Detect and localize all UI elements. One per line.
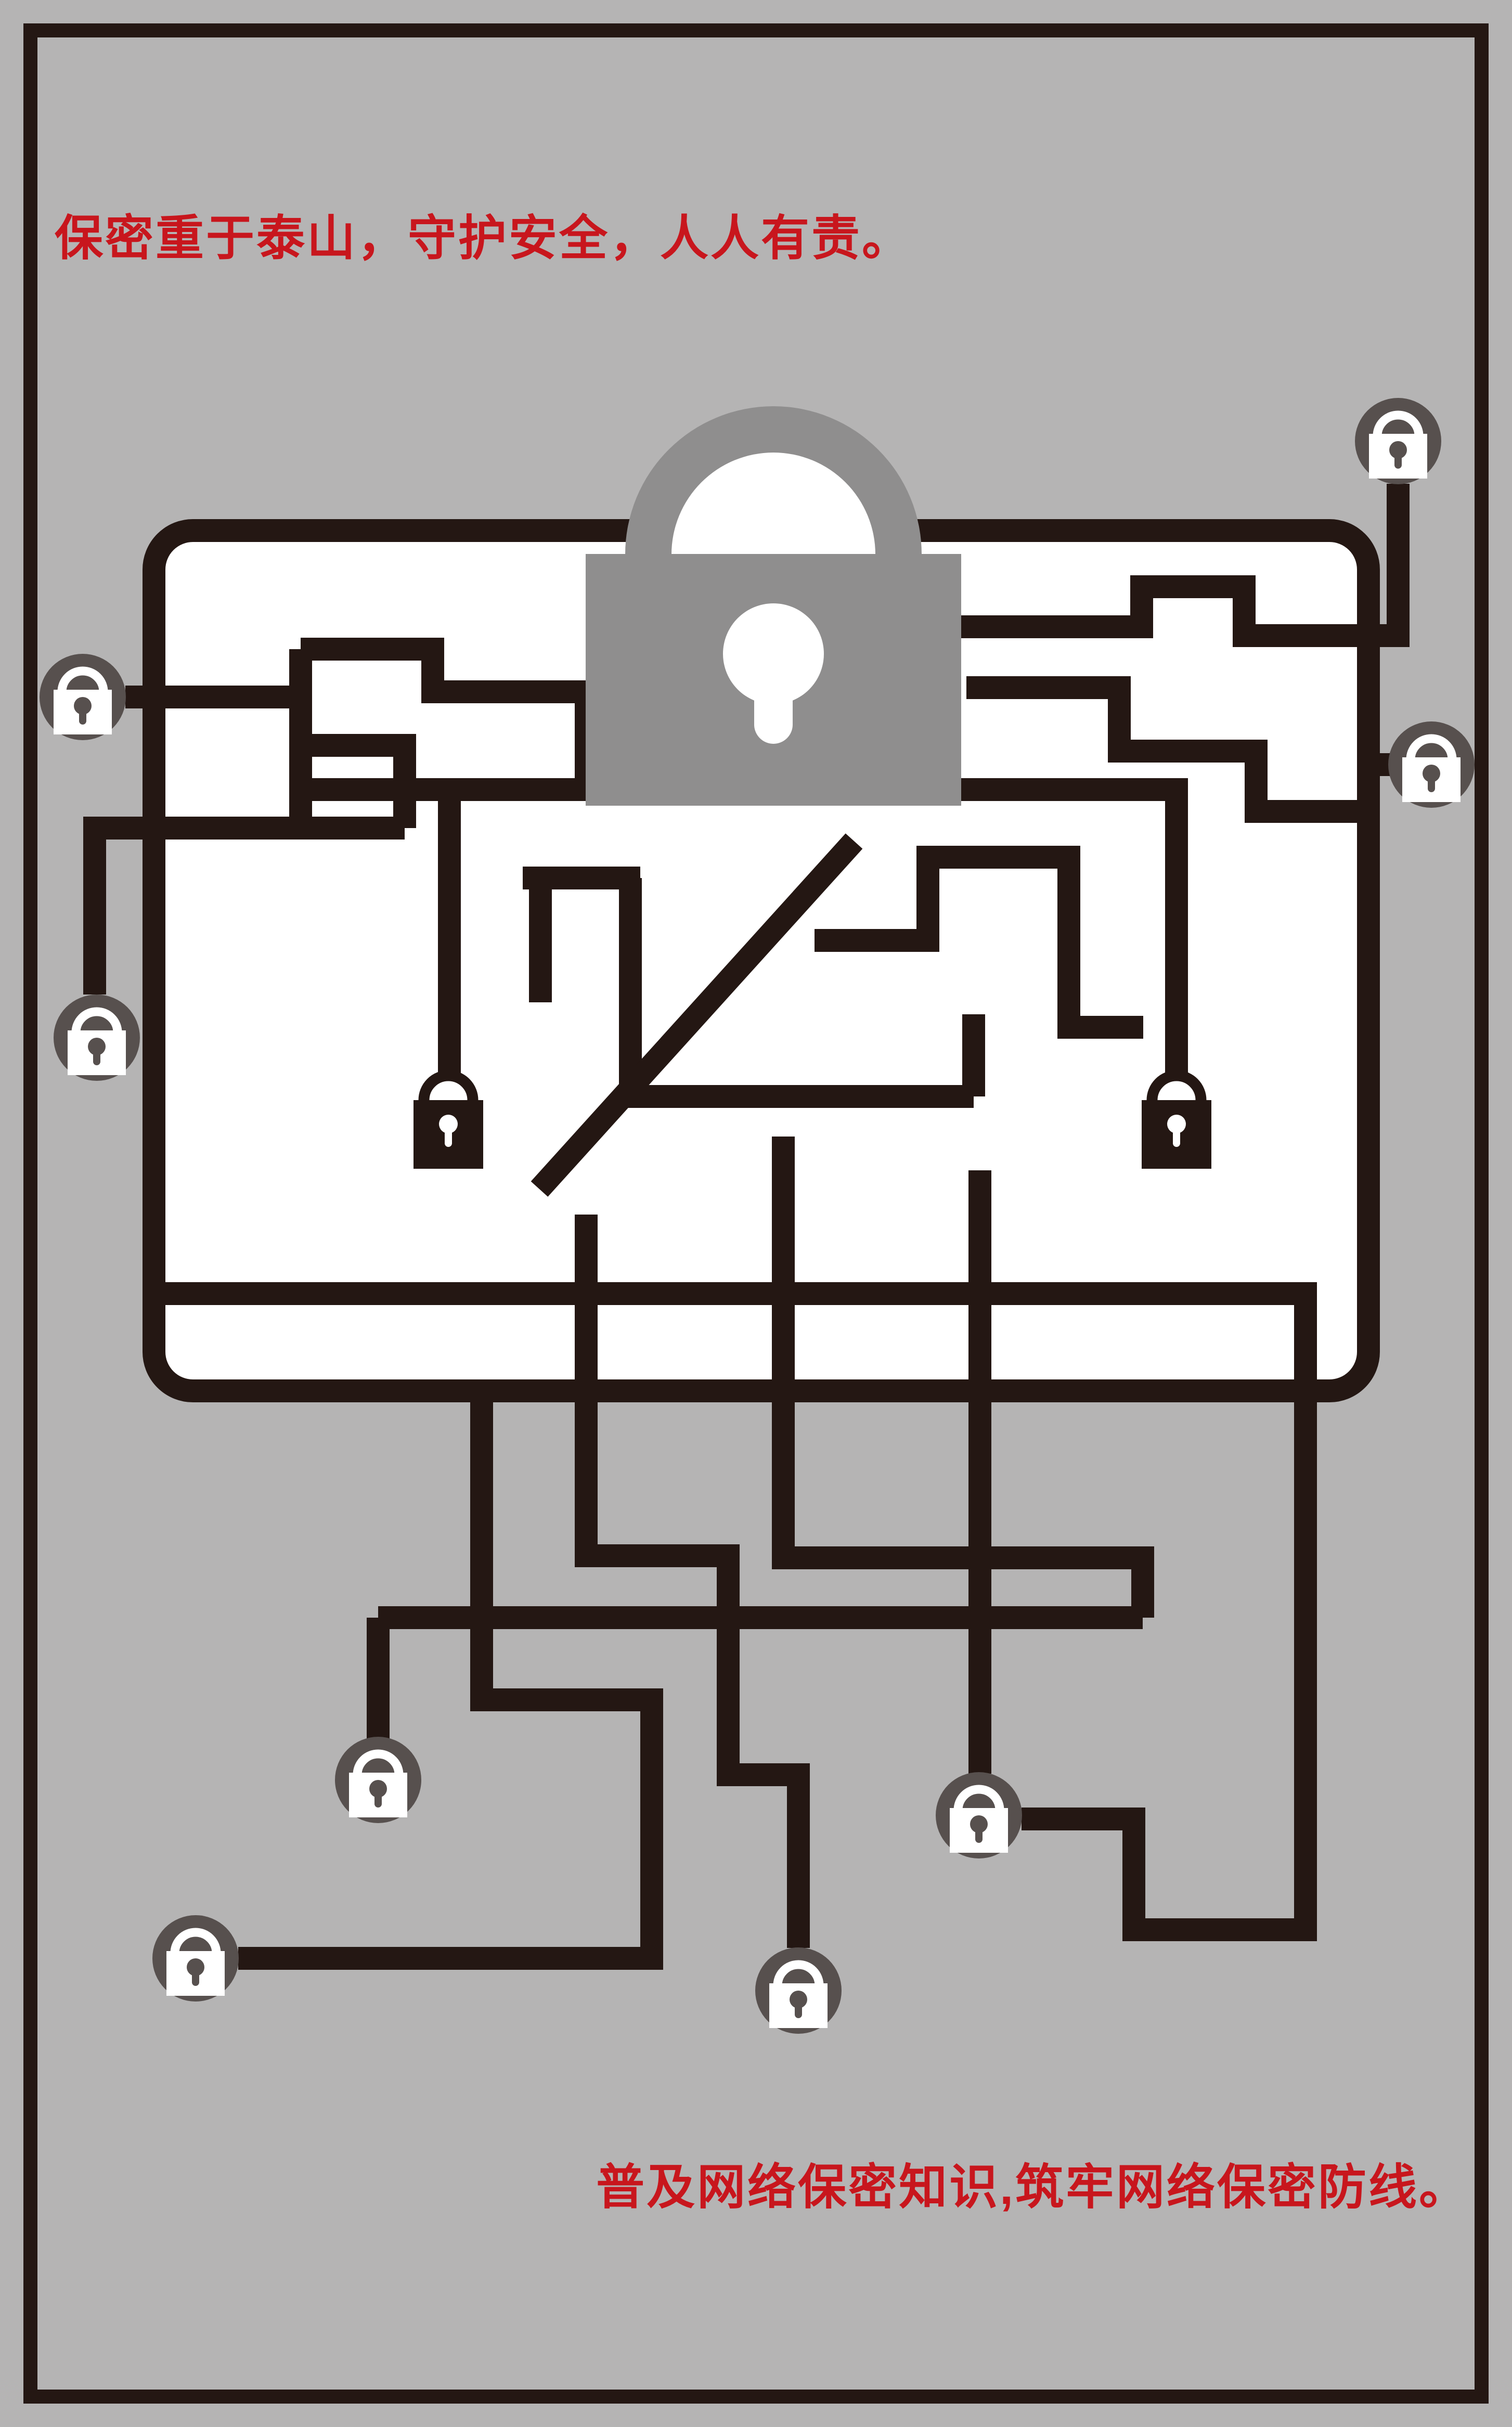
badge-padlock-icon [152, 1915, 239, 2002]
badge-padlock-icon [1388, 721, 1475, 808]
big-padlock-icon [586, 406, 961, 806]
security-poster: 保密重于泰山，守护安全，人人有责。 [0, 0, 1512, 2427]
badge-padlock-icon [40, 654, 126, 740]
badge-padlock-icon [936, 1772, 1022, 1858]
badge-padlock-icon [1355, 398, 1441, 484]
bottom-slogan: 普及网络保密知识,筑牢网络保密防线。 [596, 2160, 1469, 2215]
badge-padlock-icon [335, 1737, 421, 1823]
maze-graphic [0, 0, 1512, 2427]
badge-padlock-icon [755, 1947, 842, 2034]
badge-padlock-icon [54, 995, 140, 1081]
